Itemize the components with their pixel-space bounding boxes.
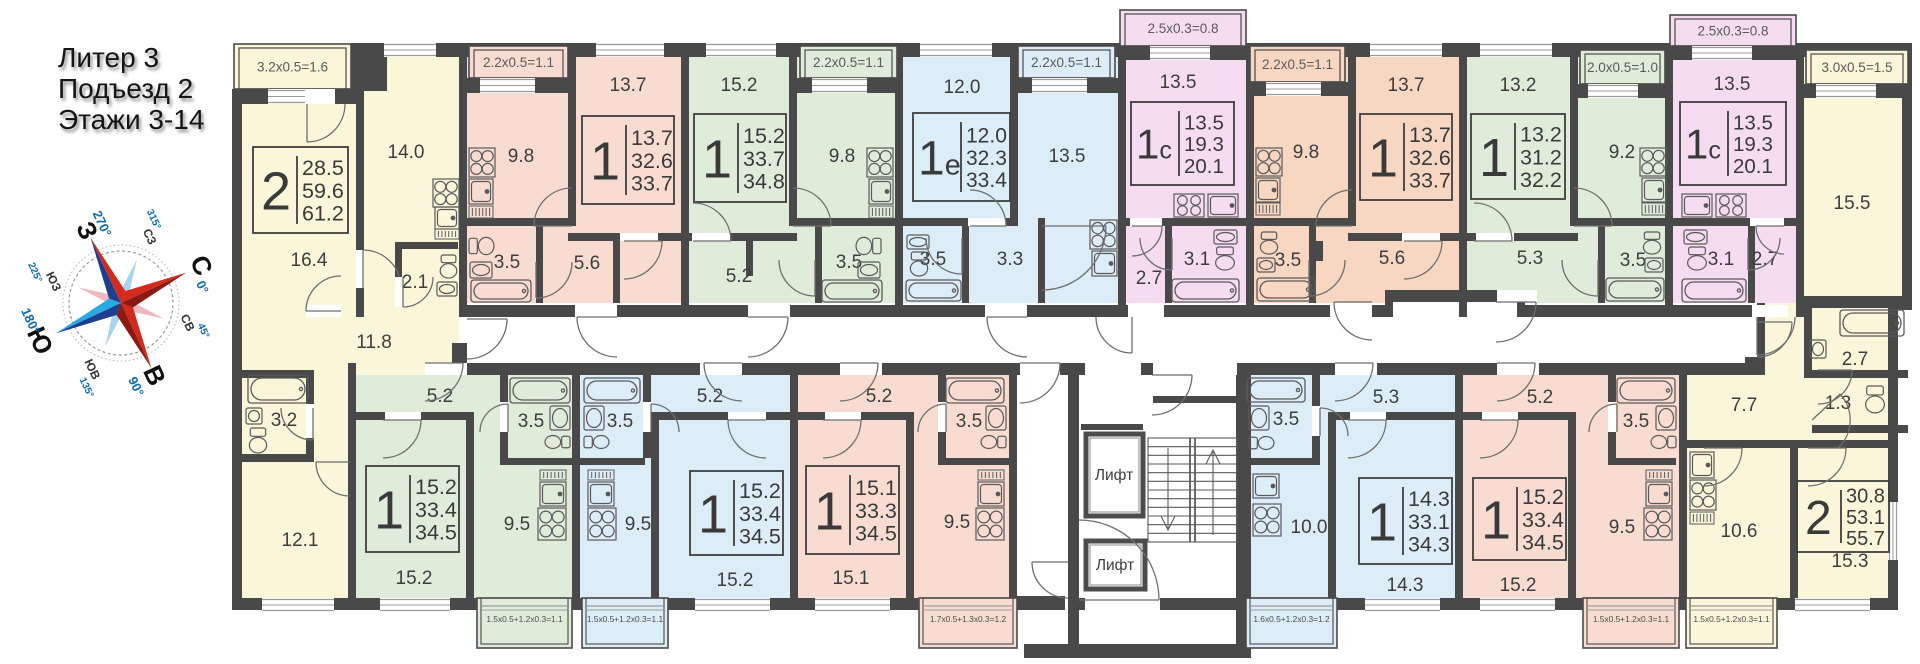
svg-text:2.7: 2.7: [1842, 349, 1868, 370]
svg-text:53.1: 53.1: [1846, 507, 1885, 529]
svg-text:33.7: 33.7: [1409, 169, 1451, 193]
svg-text:9.5: 9.5: [1609, 517, 1635, 538]
svg-text:5.2: 5.2: [697, 386, 723, 407]
svg-text:33.4: 33.4: [1522, 508, 1564, 532]
svg-text:Этажи 3-14: Этажи 3-14: [58, 104, 204, 135]
svg-text:3.5: 3.5: [518, 411, 544, 432]
svg-text:10.0: 10.0: [1291, 517, 1328, 538]
svg-text:3.5: 3.5: [494, 252, 520, 273]
svg-text:5.6: 5.6: [574, 253, 600, 274]
svg-text:34.5: 34.5: [739, 525, 781, 549]
svg-text:34.5: 34.5: [855, 522, 897, 546]
svg-text:5.6: 5.6: [1379, 248, 1405, 269]
svg-text:13.5: 13.5: [1714, 74, 1751, 95]
svg-text:15.5: 15.5: [1834, 193, 1871, 214]
svg-text:2: 2: [261, 161, 291, 221]
svg-text:1: 1: [590, 131, 620, 191]
svg-text:9.2: 9.2: [1609, 142, 1635, 163]
svg-text:9.8: 9.8: [1293, 142, 1319, 163]
svg-text:13.2: 13.2: [1520, 123, 1562, 147]
svg-text:Подъезд 2: Подъезд 2: [58, 73, 193, 104]
svg-text:9.8: 9.8: [829, 146, 855, 167]
svg-text:1: 1: [1479, 128, 1509, 188]
svg-text:15.2: 15.2: [717, 570, 754, 591]
svg-text:2.7: 2.7: [1136, 268, 1162, 289]
svg-text:2: 2: [1805, 492, 1832, 545]
svg-text:15.3: 15.3: [1832, 551, 1869, 572]
svg-text:34.3: 34.3: [1408, 533, 1450, 557]
svg-text:1: 1: [1481, 490, 1511, 550]
svg-text:1: 1: [1368, 128, 1398, 188]
svg-text:30.8: 30.8: [1846, 486, 1885, 508]
svg-text:32.6: 32.6: [1409, 146, 1451, 170]
svg-text:13.5: 13.5: [1733, 111, 1773, 134]
svg-text:1.5x0.5+1.2x0.3=1.1: 1.5x0.5+1.2x0.3=1.1: [587, 614, 664, 624]
svg-text:2.5x0.3=0.8: 2.5x0.3=0.8: [1698, 23, 1769, 38]
svg-text:20.1: 20.1: [1184, 155, 1224, 178]
svg-text:5.3: 5.3: [1373, 387, 1399, 408]
svg-text:19.3: 19.3: [1184, 133, 1224, 156]
svg-text:Литер 3: Литер 3: [58, 42, 159, 73]
svg-text:15.1: 15.1: [855, 476, 897, 500]
svg-text:13.7: 13.7: [610, 75, 647, 96]
svg-text:34.5: 34.5: [415, 521, 457, 545]
svg-text:3.5: 3.5: [1623, 411, 1649, 432]
svg-text:15.2: 15.2: [743, 124, 785, 148]
svg-text:13.5: 13.5: [1049, 146, 1086, 167]
svg-text:3.5: 3.5: [607, 411, 633, 432]
svg-text:1: 1: [374, 480, 404, 540]
svg-text:3.1: 3.1: [1708, 249, 1734, 270]
svg-text:11.8: 11.8: [356, 332, 392, 353]
svg-text:2.1: 2.1: [402, 272, 428, 293]
svg-text:9.5: 9.5: [944, 512, 970, 533]
svg-text:1.5x0.5+1.2x0.3=1.1: 1.5x0.5+1.2x0.3=1.1: [1593, 614, 1670, 624]
svg-text:33.4: 33.4: [739, 502, 781, 526]
svg-text:13.7: 13.7: [1409, 123, 1451, 147]
svg-text:3.5: 3.5: [1620, 250, 1646, 271]
svg-text:9.5: 9.5: [625, 514, 651, 535]
svg-text:15.2: 15.2: [721, 75, 758, 96]
svg-text:1.7x0.5+1.3x0.3=1.2: 1.7x0.5+1.3x0.3=1.2: [930, 614, 1007, 624]
svg-text:12.0: 12.0: [944, 77, 981, 98]
svg-text:15.2: 15.2: [739, 479, 781, 503]
svg-text:2.5x0.3=0.8: 2.5x0.3=0.8: [1148, 21, 1219, 36]
svg-text:33.4: 33.4: [415, 498, 457, 522]
svg-text:Лифт: Лифт: [1095, 467, 1133, 484]
svg-text:3.1: 3.1: [1184, 249, 1210, 270]
svg-text:15.1: 15.1: [833, 568, 870, 589]
svg-text:33.4: 33.4: [966, 169, 1007, 192]
svg-text:13.5: 13.5: [1160, 72, 1197, 93]
svg-text:32.6: 32.6: [631, 149, 673, 173]
svg-text:9.8: 9.8: [508, 146, 534, 167]
svg-text:14.3: 14.3: [1408, 487, 1450, 511]
svg-text:14.0: 14.0: [388, 142, 425, 163]
svg-text:2.2x0.5=1.1: 2.2x0.5=1.1: [1031, 55, 1102, 70]
svg-text:5.2: 5.2: [866, 386, 892, 407]
svg-text:1: 1: [1367, 492, 1397, 552]
svg-text:13.7: 13.7: [631, 126, 673, 150]
svg-text:1: 1: [814, 481, 844, 541]
svg-text:1: 1: [702, 129, 732, 189]
svg-text:33.3: 33.3: [855, 499, 897, 523]
svg-text:15.2: 15.2: [1500, 575, 1537, 596]
svg-text:32.2: 32.2: [1520, 168, 1562, 192]
svg-text:32.3: 32.3: [966, 147, 1007, 170]
svg-text:5.2: 5.2: [427, 386, 453, 407]
svg-text:3.3: 3.3: [997, 249, 1023, 270]
svg-text:15.2: 15.2: [396, 568, 433, 589]
svg-text:15.2: 15.2: [1522, 485, 1564, 509]
svg-text:3.2x0.5=1.6: 3.2x0.5=1.6: [257, 59, 328, 74]
svg-text:33.1: 33.1: [1408, 510, 1450, 534]
svg-text:12.1: 12.1: [282, 530, 319, 551]
svg-text:16.4: 16.4: [291, 250, 328, 271]
svg-text:5.2: 5.2: [1527, 387, 1553, 408]
svg-text:3.5: 3.5: [956, 411, 982, 432]
svg-text:55.7: 55.7: [1846, 528, 1885, 550]
svg-text:9.5: 9.5: [504, 514, 530, 535]
svg-text:33.7: 33.7: [631, 172, 673, 196]
svg-text:10.6: 10.6: [1721, 521, 1758, 542]
svg-text:1.5x0.5+1.2x0.3=1.1: 1.5x0.5+1.2x0.3=1.1: [486, 614, 563, 624]
svg-text:2.2x0.5=1.1: 2.2x0.5=1.1: [483, 55, 554, 70]
svg-text:2.0x0.5=1.0: 2.0x0.5=1.0: [1587, 60, 1658, 75]
svg-text:15.2: 15.2: [415, 475, 457, 499]
svg-text:34.5: 34.5: [1522, 531, 1564, 555]
svg-text:3.5: 3.5: [1273, 409, 1299, 430]
svg-text:14.3: 14.3: [1387, 575, 1424, 596]
svg-text:12.0: 12.0: [966, 125, 1007, 148]
svg-text:61.2: 61.2: [302, 202, 344, 226]
svg-text:2.2x0.5=1.1: 2.2x0.5=1.1: [1262, 57, 1333, 72]
svg-text:59.6: 59.6: [302, 179, 344, 203]
svg-text:3.0x0.5=1.5: 3.0x0.5=1.5: [1822, 60, 1893, 75]
svg-text:2.2x0.5=1.1: 2.2x0.5=1.1: [813, 55, 884, 70]
svg-text:3.5: 3.5: [1275, 250, 1301, 271]
svg-text:13.2: 13.2: [1500, 75, 1537, 96]
svg-text:13.7: 13.7: [1388, 75, 1425, 96]
svg-text:7.7: 7.7: [1731, 395, 1757, 416]
svg-text:1.6x0.5+1.2x0.3=1.2: 1.6x0.5+1.2x0.3=1.2: [1253, 614, 1330, 624]
svg-text:34.8: 34.8: [743, 170, 785, 194]
svg-text:33.7: 33.7: [743, 147, 785, 171]
svg-text:1: 1: [698, 484, 728, 544]
svg-text:19.3: 19.3: [1733, 133, 1773, 156]
svg-text:1.5x0.5+1.2x0.3=1.1: 1.5x0.5+1.2x0.3=1.1: [1693, 614, 1770, 624]
svg-text:5.2: 5.2: [726, 266, 752, 287]
svg-text:31.2: 31.2: [1520, 146, 1562, 170]
svg-text:20.1: 20.1: [1733, 155, 1773, 178]
svg-text:28.5: 28.5: [302, 156, 344, 180]
svg-text:5.3: 5.3: [1517, 248, 1543, 269]
svg-text:13.5: 13.5: [1184, 111, 1224, 134]
svg-text:Лифт: Лифт: [1096, 557, 1134, 574]
